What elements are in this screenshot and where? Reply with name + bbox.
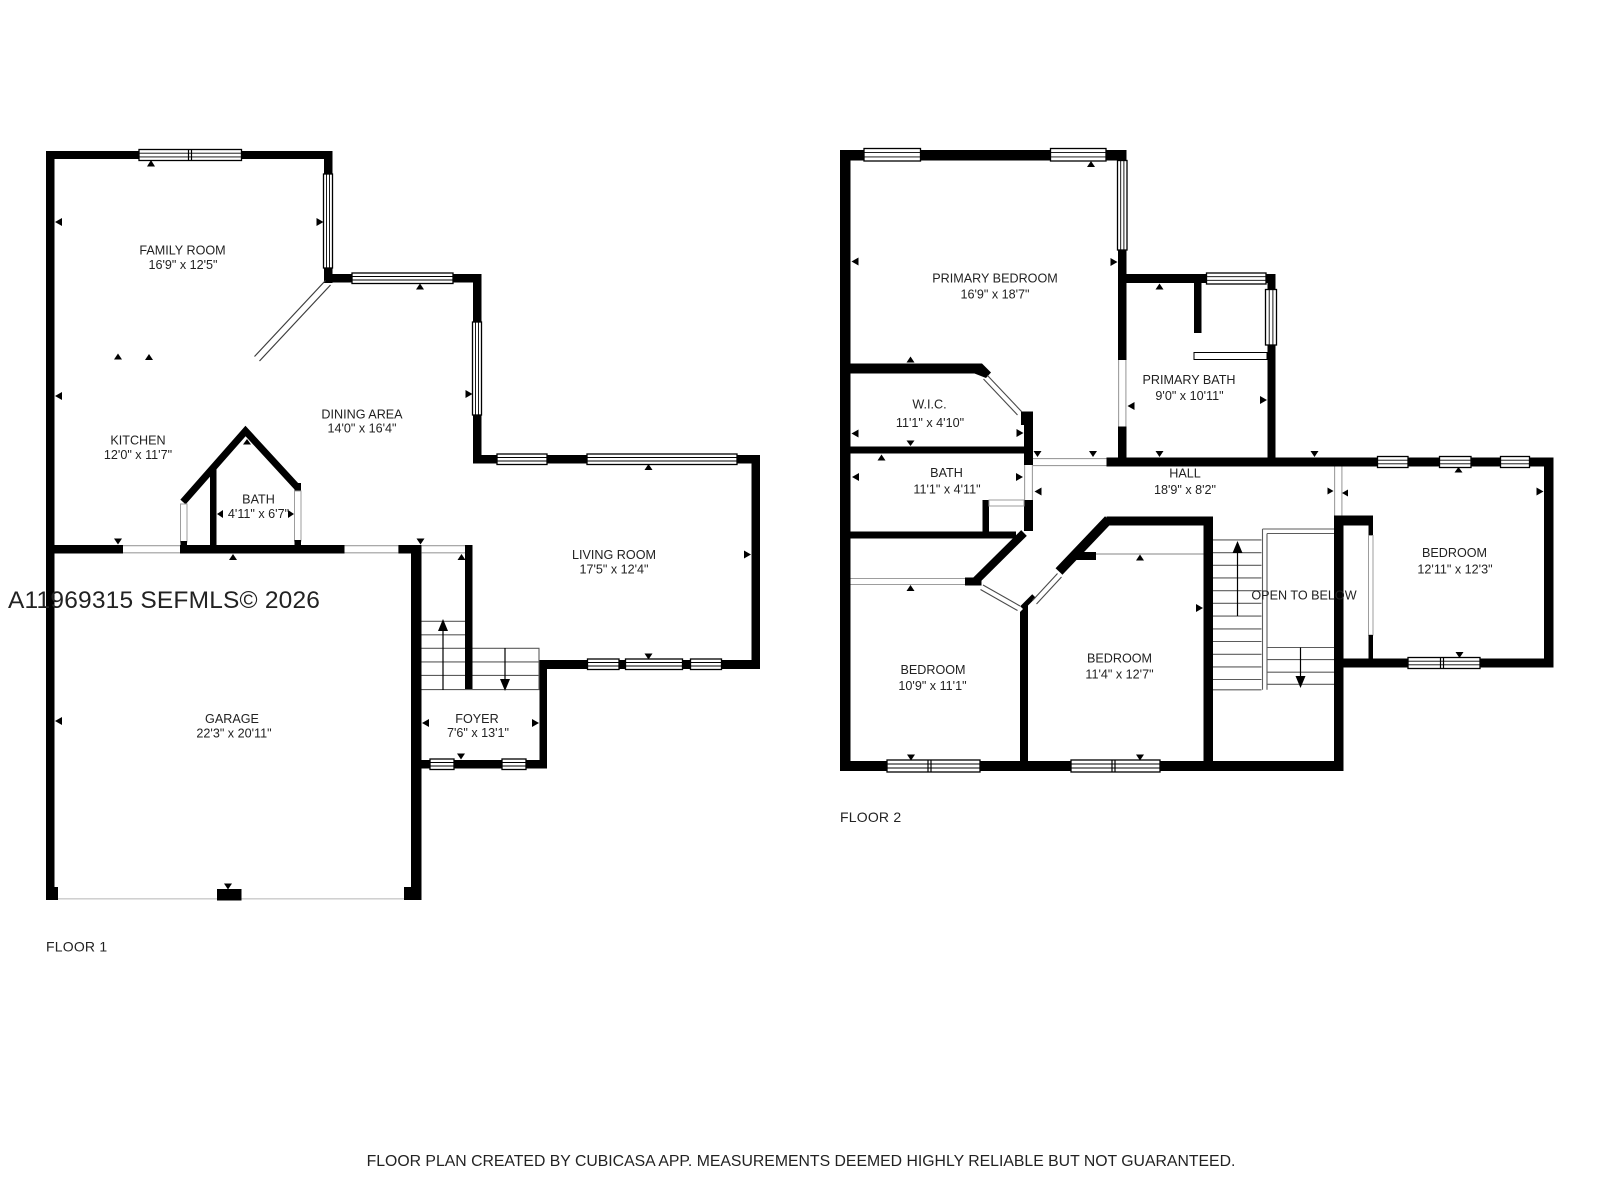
svg-text:16'9" x 12'5": 16'9" x 12'5" [148, 258, 217, 272]
svg-text:BATH: BATH [242, 493, 275, 507]
svg-text:FAMILY ROOM: FAMILY ROOM [139, 244, 225, 258]
svg-text:FOYER: FOYER [455, 712, 498, 726]
svg-text:OPEN TO BELOW: OPEN TO BELOW [1251, 589, 1356, 603]
svg-text:KITCHEN: KITCHEN [110, 434, 165, 448]
svg-text:14'0" x 16'4": 14'0" x 16'4" [327, 422, 396, 436]
svg-text:GARAGE: GARAGE [205, 712, 259, 726]
svg-text:12'0" x 11'7": 12'0" x 11'7" [104, 448, 172, 462]
svg-text:16'9" x 18'7": 16'9" x 18'7" [960, 288, 1029, 302]
svg-text:11'4" x 12'7": 11'4" x 12'7" [1085, 668, 1153, 682]
svg-text:W.I.C.: W.I.C. [912, 398, 946, 412]
svg-text:BEDROOM: BEDROOM [900, 663, 965, 677]
svg-text:PRIMARY BATH: PRIMARY BATH [1142, 373, 1235, 387]
svg-text:BEDROOM: BEDROOM [1087, 652, 1152, 666]
svg-text:FLOOR 2: FLOOR 2 [840, 809, 901, 825]
svg-text:11'1" x 4'11": 11'1" x 4'11" [913, 483, 980, 497]
svg-text:BEDROOM: BEDROOM [1422, 546, 1487, 560]
svg-text:12'11" x 12'3": 12'11" x 12'3" [1417, 563, 1492, 577]
svg-text:BATH: BATH [930, 466, 963, 480]
svg-text:18'9" x 8'2": 18'9" x 8'2" [1154, 483, 1216, 497]
svg-text:LIVING ROOM: LIVING ROOM [572, 548, 656, 562]
svg-text:A11969315 SEFMLS© 2026: A11969315 SEFMLS© 2026 [8, 587, 320, 614]
svg-text:17'5" x 12'4": 17'5" x 12'4" [579, 563, 648, 577]
svg-text:7'6" x 13'1": 7'6" x 13'1" [447, 726, 509, 740]
svg-text:22'3" x 20'11": 22'3" x 20'11" [196, 727, 271, 741]
svg-text:4'11" x 6'7": 4'11" x 6'7" [228, 507, 289, 521]
svg-text:11'1" x 4'10": 11'1" x 4'10" [896, 416, 964, 430]
svg-text:9'0" x 10'11": 9'0" x 10'11" [1155, 389, 1223, 403]
svg-text:10'9" x 11'1": 10'9" x 11'1" [898, 679, 966, 693]
svg-text:DINING AREA: DINING AREA [321, 408, 403, 422]
svg-text:FLOOR 1: FLOOR 1 [46, 939, 107, 955]
svg-text:HALL: HALL [1169, 467, 1201, 481]
svg-text:PRIMARY BEDROOM: PRIMARY BEDROOM [932, 272, 1058, 286]
svg-text:FLOOR PLAN CREATED BY CUBICASA: FLOOR PLAN CREATED BY CUBICASA APP. MEAS… [367, 1153, 1236, 1170]
